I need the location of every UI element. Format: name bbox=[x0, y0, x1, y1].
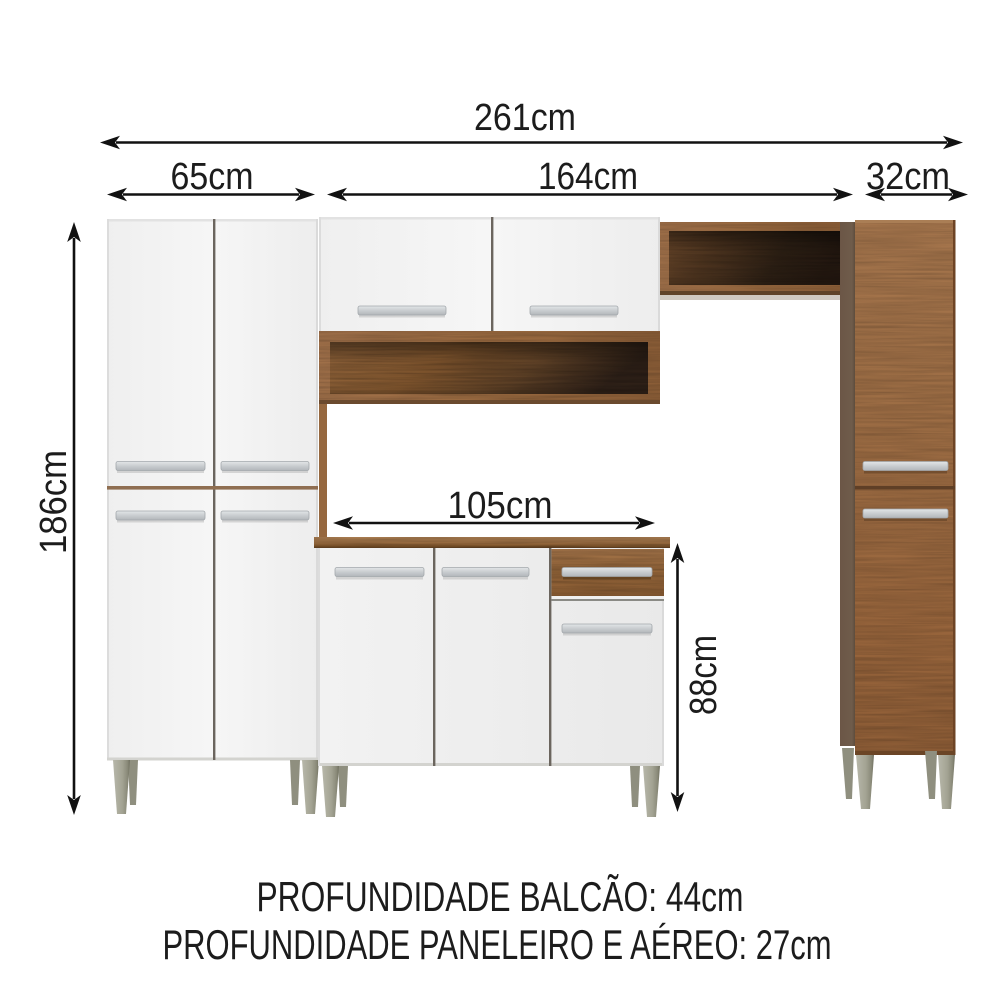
svg-text:PROFUNDIDADE PANELEIRO E AÉREO: PROFUNDIDADE PANELEIRO E AÉREO: 27cm bbox=[163, 921, 832, 968]
svg-text:186cm: 186cm bbox=[33, 450, 75, 554]
svg-text:164cm: 164cm bbox=[538, 156, 638, 198]
svg-text:261cm: 261cm bbox=[474, 97, 576, 139]
svg-text:88cm: 88cm bbox=[683, 635, 725, 715]
svg-text:65cm: 65cm bbox=[171, 156, 254, 198]
svg-text:PROFUNDIDADE BALCÃO: 44cm: PROFUNDIDADE BALCÃO: 44cm bbox=[257, 873, 744, 920]
svg-text:105cm: 105cm bbox=[448, 485, 553, 527]
